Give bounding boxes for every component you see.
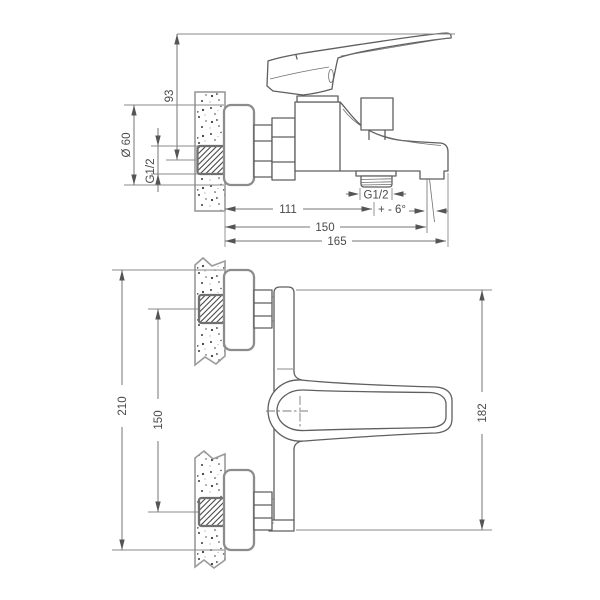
drawing-page: 93 Ø 60 G1/2 G1/2 — [0, 0, 600, 600]
wall-pipe-hatch — [198, 146, 225, 174]
dim-150-projection: 150 — [225, 221, 426, 234]
dim-150-projection-label: 150 — [315, 222, 334, 234]
shower-outlet-thread — [356, 171, 396, 187]
dim-210-label: 210 — [117, 396, 129, 415]
dim-150-centres: 150 — [148, 309, 198, 512]
union-nut-upper-plan — [254, 290, 274, 328]
union-nut — [254, 118, 295, 180]
dim-outlet-thread-label: G1/2 — [364, 190, 389, 202]
angle-reference-tilted — [430, 179, 435, 222]
dim-165-label: 165 — [327, 236, 346, 248]
wall-pipe-hatch-lower — [199, 498, 225, 526]
spout-aerator — [427, 179, 435, 233]
dim-93-label: 93 — [164, 90, 176, 103]
lever-handle — [267, 33, 451, 95]
escutcheon-flange — [224, 105, 254, 185]
technical-drawing-canvas: 93 Ø 60 G1/2 G1/2 — [0, 0, 600, 600]
dim-outlet-thread: G1/2 — [346, 188, 406, 202]
dim-111-label: 111 — [279, 204, 296, 216]
escutcheon-flange-lower — [224, 470, 254, 550]
dim-182-label: 182 — [477, 403, 489, 422]
dim-angle-tolerance: + - 6° — [378, 204, 448, 216]
cartridge-collar — [297, 96, 338, 102]
escutcheon-flange-upper — [224, 270, 254, 350]
dim-flange-diameter-label: Ø 60 — [121, 133, 133, 158]
side-view: 93 Ø 60 G1/2 G1/2 — [121, 33, 455, 248]
dim-angle-label: + - 6° — [378, 204, 406, 216]
dim-150-centres-label: 150 — [153, 410, 165, 429]
wall-pipe-hatch-upper — [199, 295, 225, 323]
lever-handle-plan — [266, 372, 452, 449]
dim-wall-thread-label: G1/2 — [145, 159, 157, 184]
union-nut-lower-plan — [254, 492, 274, 530]
plan-view: 210 150 182 — [112, 258, 492, 568]
